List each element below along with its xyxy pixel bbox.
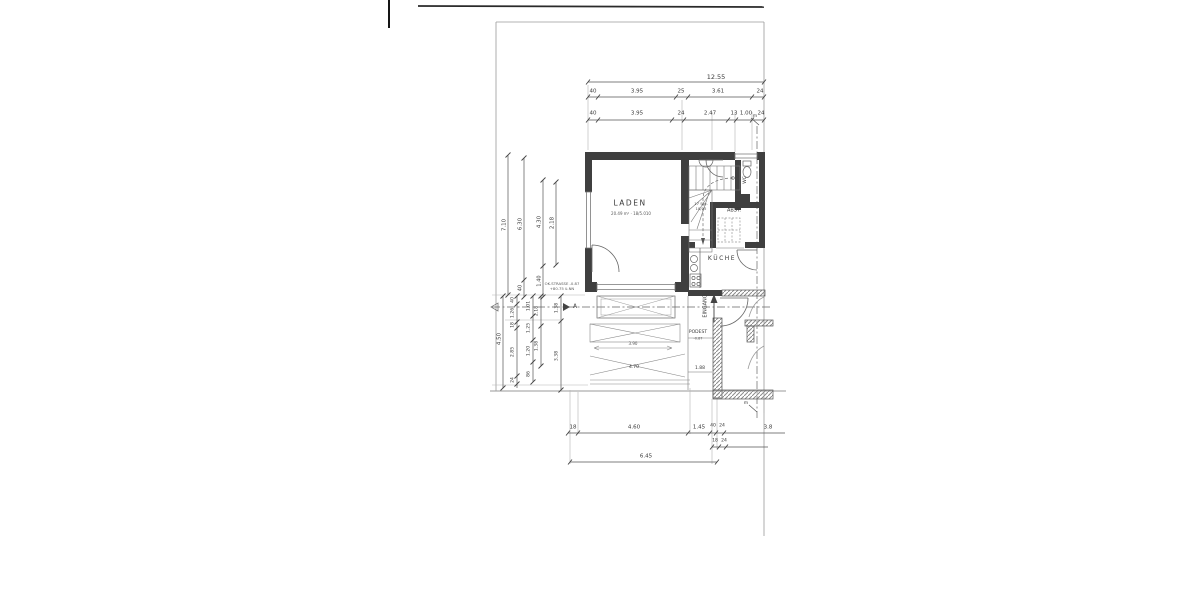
eingang-label: EINGANG	[704, 294, 709, 317]
podest-level: -0.87	[693, 337, 702, 341]
dim-cole-1: 3.38	[556, 351, 561, 361]
guide-lines	[492, 85, 764, 464]
dim-top-r2-1: 3.95	[631, 111, 643, 117]
dim-colb-1: 1.26	[512, 308, 517, 318]
dim-cole-0: 1.38	[556, 303, 561, 313]
dim-bot-5: 3.8	[764, 425, 773, 431]
dim-top-r2-0: 40	[590, 111, 597, 117]
dimension-ticks	[501, 80, 767, 465]
stair-note-2: 18/25	[696, 207, 707, 211]
axis-label-m-top: m	[753, 115, 757, 120]
kitchen-sink-icon	[691, 256, 698, 263]
room-note-laden: 20.49 m² · 18/5.010	[611, 212, 651, 216]
dim-colb-3: 2.85	[512, 347, 517, 357]
axis-label-m-bottom: m	[744, 402, 748, 407]
dim-cold-1: 1.38	[536, 341, 541, 351]
dim-top-r1-3: 3.61	[712, 89, 724, 95]
dim-top-r2-2: 24	[678, 111, 685, 117]
scanned-floor-plan: 12.55 40 3.95 25 3.61 24 40 3.95 24 2.47…	[0, 0, 1200, 600]
room-label-abst: ABST.	[727, 209, 741, 214]
ramp-dim-w: 1.88	[695, 367, 705, 372]
dim-colc-1: 1.25	[528, 323, 533, 333]
dim-colc-2: 1.20	[528, 346, 533, 356]
kitchen-sink-icon-2	[691, 265, 698, 272]
dim-bot-0: 18	[570, 425, 577, 431]
dim-bot-4: 24	[719, 425, 725, 430]
ramp-dim-len: 4.70	[629, 366, 639, 371]
dim-top-r1-4: 24	[757, 89, 764, 95]
dim-bot-3: 40	[710, 425, 716, 430]
dim-top-r2-4: 13	[731, 111, 738, 117]
dim-left-710: 7.10	[502, 219, 508, 231]
plan-linework	[0, 0, 1200, 600]
stair-arrow-icon	[701, 238, 705, 245]
podest-label: PODEST	[689, 331, 707, 336]
dim-colb-0b: 40	[512, 297, 517, 303]
wc-sink-icon	[739, 194, 750, 202]
dim-colb-2: 18	[512, 322, 517, 328]
ramp-dim-mid: 3.90	[629, 342, 638, 346]
building-walls	[585, 152, 765, 296]
street-note-2: +80.75 ü.NN	[550, 287, 575, 291]
dim-top-r1-2: 25	[678, 89, 685, 95]
toilet-tank	[743, 161, 751, 166]
room-label-kueche: KÜCHE	[708, 256, 736, 262]
dim-bot2-0: 18	[712, 440, 718, 445]
dim-top-r2-5: 1.00	[740, 111, 752, 117]
dim-left-630: 6.30	[518, 218, 524, 230]
dim-colb-4: 24	[512, 377, 517, 383]
dim-bot-total: 6.45	[640, 454, 652, 460]
dim-bot2-1: 24	[721, 440, 727, 445]
dimension-lines	[501, 80, 786, 465]
room-label-laden: LADEN	[613, 199, 646, 207]
dim-left-40: 40	[519, 285, 524, 291]
dim-colc-0: 1.01	[528, 301, 533, 311]
abst-shelf	[718, 218, 740, 242]
dim-left-430: 4.30	[537, 216, 543, 228]
dim-left-218: 2.18	[550, 217, 556, 229]
dim-top-r1-0: 40	[590, 89, 597, 95]
dim-colc-3: 86	[528, 371, 533, 377]
dim-top-r2-3: 2.47	[704, 111, 716, 117]
section-arrow-icon	[563, 303, 570, 311]
dim-top-total: 12.55	[707, 74, 726, 81]
axis-lines	[492, 126, 770, 418]
dim-bot-2: 1.45	[693, 425, 705, 431]
room-label-wc: WC	[744, 176, 749, 184]
dim-top-r1-1: 3.95	[631, 89, 643, 95]
dim-left-140: 1.40	[538, 275, 543, 286]
dim-left-total: 4.50	[497, 333, 503, 345]
ramp-steps	[590, 324, 690, 384]
dim-bot-1: 4.60	[628, 425, 640, 431]
dim-top-r2-6: 24	[758, 111, 765, 117]
dim-cold-0: 2.18	[536, 306, 541, 316]
section-label-a: A	[573, 304, 577, 310]
